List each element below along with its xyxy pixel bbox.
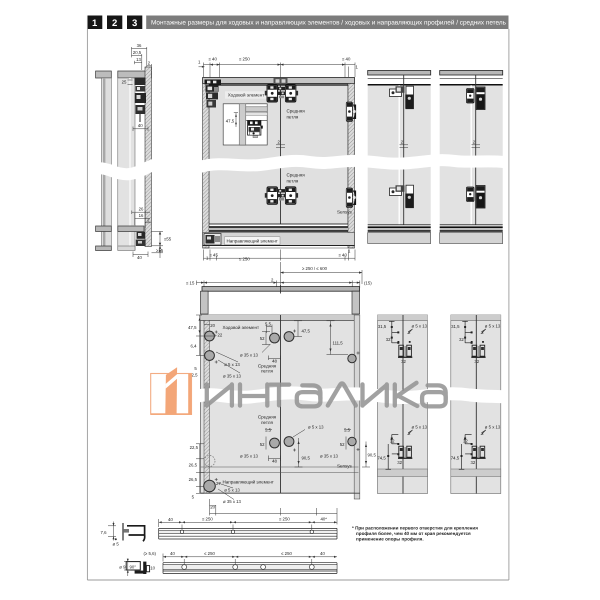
svg-text:(≥ 5,6): (≥ 5,6) (144, 551, 157, 556)
svg-text:26,5: 26,5 (189, 462, 198, 467)
svg-text:52: 52 (340, 442, 345, 447)
svg-text:ø 35 x 13: ø 35 x 13 (223, 499, 242, 504)
svg-text:2: 2 (112, 18, 117, 29)
svg-text:профиля более, чем 40 мм от кр: профиля более, чем 40 мм от края рекомен… (356, 531, 471, 536)
svg-text:≤ 250: ≤ 250 (281, 551, 292, 556)
svg-text:≤ 40: ≤ 40 (339, 252, 348, 257)
svg-text:ø 35 x 13: ø 35 x 13 (240, 453, 259, 458)
svg-text:Sensys: Sensys (337, 464, 353, 469)
svg-text:петля: петля (287, 178, 299, 183)
svg-text:≤ 250: ≤ 250 (239, 57, 250, 62)
svg-text:≤ 250: ≤ 250 (204, 551, 215, 556)
svg-text:90,5: 90,5 (368, 452, 377, 457)
svg-text:20,5: 20,5 (133, 50, 142, 55)
svg-text:7,6: 7,6 (101, 530, 108, 535)
svg-text:Средняя: Средняя (287, 108, 306, 113)
svg-text:5,5: 5,5 (265, 321, 272, 326)
svg-text:Sensys: Sensys (337, 209, 353, 214)
svg-text:петля: петля (287, 114, 299, 119)
svg-text:36: 36 (137, 43, 142, 48)
svg-text:40: 40 (138, 123, 143, 128)
svg-text:32: 32 (397, 460, 402, 465)
svg-text:ø 35 x 13: ø 35 x 13 (223, 373, 242, 378)
svg-text:13: 13 (136, 57, 141, 62)
svg-text:52: 52 (260, 336, 265, 341)
svg-text:22: 22 (218, 333, 223, 338)
svg-text:6,4: 6,4 (191, 343, 198, 348)
svg-text:1: 1 (92, 18, 98, 29)
svg-text:16: 16 (139, 213, 144, 218)
svg-text:≤ 250: ≤ 250 (202, 517, 213, 522)
svg-text:Средняя: Средняя (287, 172, 306, 177)
svg-text:≤ 250: ≤ 250 (239, 256, 250, 261)
svg-text:Направляющий элемент: Направляющий элемент (223, 480, 274, 485)
svg-text:ø 5 x 13: ø 5 x 13 (412, 425, 428, 430)
svg-text:ø 5: ø 5 (113, 542, 120, 547)
svg-text:25: 25 (122, 79, 127, 84)
svg-text:Монтажные размеры для ходовых: Монтажные размеры для ходовых и направля… (151, 20, 507, 27)
svg-text:40: 40 (137, 255, 142, 260)
svg-text:≥15: ≥15 (156, 248, 164, 253)
svg-text:40: 40 (170, 551, 175, 556)
svg-text:ø 5 x 13: ø 5 x 13 (308, 424, 324, 429)
svg-text:90,5: 90,5 (302, 455, 311, 460)
svg-text:≥ 250 / ≤ 600: ≥ 250 / ≤ 600 (302, 266, 328, 271)
svg-text:ø 9: ø 9 (119, 565, 126, 570)
svg-text:74,5: 74,5 (377, 456, 386, 461)
svg-text:≤ 250: ≤ 250 (279, 517, 290, 522)
svg-text:ø 35 x 13: ø 35 x 13 (320, 453, 339, 458)
svg-text:40: 40 (168, 517, 173, 522)
svg-text:40*: 40* (321, 517, 328, 522)
svg-text:52: 52 (260, 442, 265, 447)
svg-text:20: 20 (210, 505, 215, 510)
svg-text:47,5: 47,5 (226, 118, 235, 123)
svg-text:111,5: 111,5 (333, 340, 344, 345)
svg-text:Ходовой элемент: Ходовой элемент (223, 325, 260, 330)
svg-text:20: 20 (210, 323, 215, 328)
svg-text:Ходовой элемент: Ходовой элемент (228, 93, 265, 98)
svg-text:ø 35 x 13: ø 35 x 13 (240, 352, 259, 357)
svg-text:31,5: 31,5 (378, 324, 387, 329)
svg-text:47,5: 47,5 (302, 328, 311, 333)
svg-text:40: 40 (320, 551, 325, 556)
svg-text:петля: петля (261, 420, 273, 425)
svg-text:петля: петля (261, 369, 273, 374)
svg-text:26: 26 (139, 207, 144, 212)
svg-text:32: 32 (390, 438, 395, 443)
svg-text:ø 5 x 13: ø 5 x 13 (224, 488, 240, 493)
svg-text:5,5: 5,5 (344, 427, 351, 432)
svg-text:* При расположении первого отв: * При расположении первого отверстия для… (352, 526, 478, 531)
svg-text:применение опоры профиля.: применение опоры профиля. (356, 536, 424, 541)
svg-text:≤ 40: ≤ 40 (342, 57, 351, 62)
svg-text:≤55: ≤55 (164, 237, 172, 242)
svg-text:26,5: 26,5 (189, 477, 198, 482)
svg-text:Направляющий элемент: Направляющий элемент (227, 238, 278, 243)
svg-text:≤ 45: ≤ 45 (210, 252, 219, 257)
svg-text:ø 5 x 13: ø 5 x 13 (412, 324, 428, 329)
svg-text:32: 32 (401, 359, 406, 364)
svg-text:10: 10 (150, 566, 155, 571)
svg-text:47,5: 47,5 (188, 325, 197, 330)
svg-text:32: 32 (386, 337, 391, 342)
svg-text:22,5: 22,5 (190, 445, 199, 450)
svg-text:48: 48 (272, 458, 277, 463)
svg-text:≤ 40: ≤ 40 (209, 57, 218, 62)
svg-text:90°: 90° (130, 564, 137, 569)
svg-text:5,5: 5,5 (265, 427, 272, 432)
svg-text:≤ 15: ≤ 15 (186, 281, 195, 286)
svg-text:3: 3 (132, 18, 137, 29)
svg-text:ø 5 x 13: ø 5 x 13 (224, 362, 240, 367)
svg-text:(15): (15) (364, 281, 372, 286)
